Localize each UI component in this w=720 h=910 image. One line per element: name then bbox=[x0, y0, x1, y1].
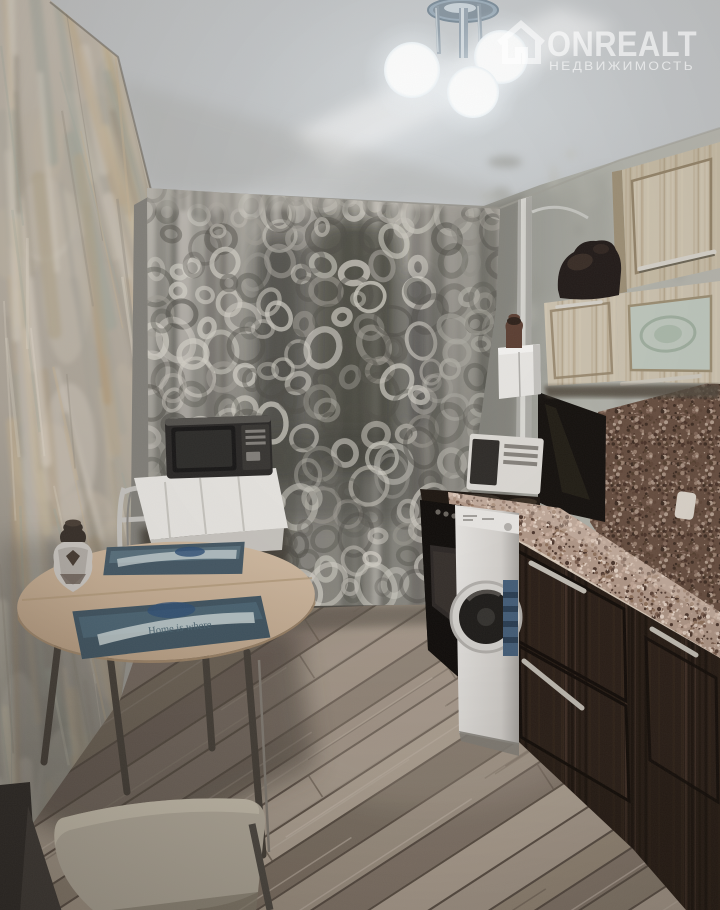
svg-text:НЕДВИЖИМОСТЬ: НЕДВИЖИМОСТЬ bbox=[549, 61, 695, 73]
svg-text:ONREALT: ONREALT bbox=[547, 25, 697, 64]
